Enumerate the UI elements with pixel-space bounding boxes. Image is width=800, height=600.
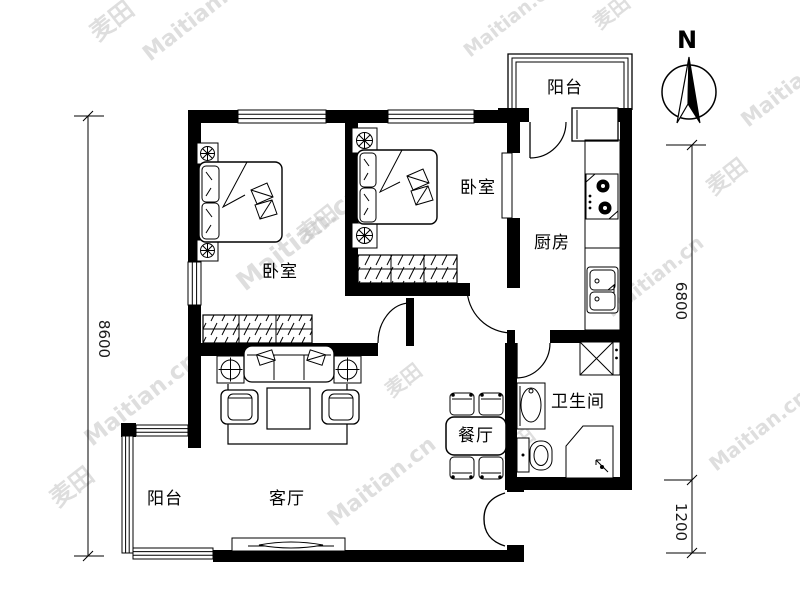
watermark-brand: Maitian.cn xyxy=(138,0,256,67)
armchair-icon xyxy=(322,390,359,424)
window-bedroom1-west xyxy=(188,262,201,305)
floor-plan-page: Maitian.cn 麦田 Maitian.cn 麦田 Maitian.cn 麦… xyxy=(0,0,800,600)
window-bedroom1-north xyxy=(238,110,326,123)
label-bedroom1: 卧室 xyxy=(262,262,298,282)
nightstand-icon xyxy=(352,128,377,153)
dining-chair-icon xyxy=(479,457,503,479)
washbasin-icon xyxy=(517,383,545,429)
wall-balcony-post xyxy=(121,423,136,437)
wall-bathroom-south xyxy=(505,477,632,490)
washing-machine-icon xyxy=(580,342,620,375)
wall-left-lower xyxy=(188,305,201,448)
watermark-logo: 麦田 xyxy=(380,358,426,402)
wall-balcony-kitchen-1 xyxy=(498,108,529,122)
label-bedroom2: 卧室 xyxy=(460,178,496,198)
door-corridor-kitchen xyxy=(467,288,512,333)
compass-icon: N xyxy=(662,26,716,123)
door-bedroom1 xyxy=(378,303,410,343)
label-balcony-top: 阳台 xyxy=(547,78,583,98)
kitchen-fixtures xyxy=(572,108,620,330)
bed-icon xyxy=(199,162,282,242)
watermark-logo: 麦田 xyxy=(84,0,139,47)
wall-right xyxy=(620,108,632,490)
floor-plan-canvas: Maitian.cn 麦田 Maitian.cn 麦田 Maitian.cn 麦… xyxy=(0,0,800,600)
watermark-brand: Maitian.cn xyxy=(736,37,800,132)
dining-chair-icon xyxy=(450,457,474,479)
side-table-icon xyxy=(217,356,244,383)
label-kitchen: 厨房 xyxy=(534,233,570,253)
watermark-brand: Maitian.cn xyxy=(460,0,562,62)
window-bedroom2-north xyxy=(388,110,474,123)
watermark-logo: 麦田 xyxy=(44,461,99,513)
tv-cabinet-icon xyxy=(232,538,345,551)
compass-north-label: N xyxy=(677,26,697,54)
wall-bathroom-west xyxy=(505,343,517,477)
wall-entry-jamb-top xyxy=(507,480,524,492)
dimension-right-lower-value: 1200 xyxy=(672,503,690,541)
watermark-brand: Maitian.cn xyxy=(323,432,441,532)
watermark-brand: Maitian.cn xyxy=(704,384,800,476)
dimension-left-value: 8600 xyxy=(95,320,113,358)
wardrobe-icon xyxy=(358,255,457,283)
wall-bathroom-north-1 xyxy=(507,330,515,343)
wall-kitchen-west-2 xyxy=(507,218,520,288)
nightstand-icon xyxy=(197,240,218,261)
label-bathroom: 卫生间 xyxy=(551,392,605,412)
sofa-icon xyxy=(244,346,334,382)
armchair-icon xyxy=(221,390,258,424)
door-balcony-kitchen xyxy=(530,122,566,158)
kitchen-sink-icon xyxy=(587,267,618,313)
bed-icon xyxy=(357,150,437,224)
fridge-icon xyxy=(572,108,618,141)
wall-bottom xyxy=(213,550,524,562)
door-entry-double-swing xyxy=(484,493,505,546)
dining-chair-icon xyxy=(479,393,503,415)
label-balcony-bottom: 阳台 xyxy=(147,489,183,509)
coffee-table-icon xyxy=(267,388,310,429)
nightstand-icon xyxy=(197,143,218,164)
wall-bathroom-north-2 xyxy=(550,330,632,343)
door-leaf-corridor xyxy=(406,298,414,346)
toilet-icon xyxy=(517,438,552,472)
side-table-icon xyxy=(334,356,361,383)
dining-chair-icon xyxy=(450,393,474,415)
wardrobe-icon xyxy=(203,315,312,343)
dimension-right: 6800 1200 xyxy=(664,140,706,558)
watermark-logo: 麦田 xyxy=(702,153,753,201)
stove-icon xyxy=(586,174,618,219)
door-kitchen-sliding xyxy=(502,153,512,218)
label-living: 客厅 xyxy=(269,489,305,509)
door-bathroom xyxy=(517,343,550,378)
nightstand-icon xyxy=(352,223,377,248)
shower-icon xyxy=(566,426,613,478)
label-dining: 餐厅 xyxy=(458,426,494,446)
wall-bedroom2-south xyxy=(345,283,470,296)
dimension-right-upper-value: 6800 xyxy=(672,282,690,320)
watermark-logo: 麦田 xyxy=(588,0,634,34)
bedroom2-furniture xyxy=(352,128,457,283)
